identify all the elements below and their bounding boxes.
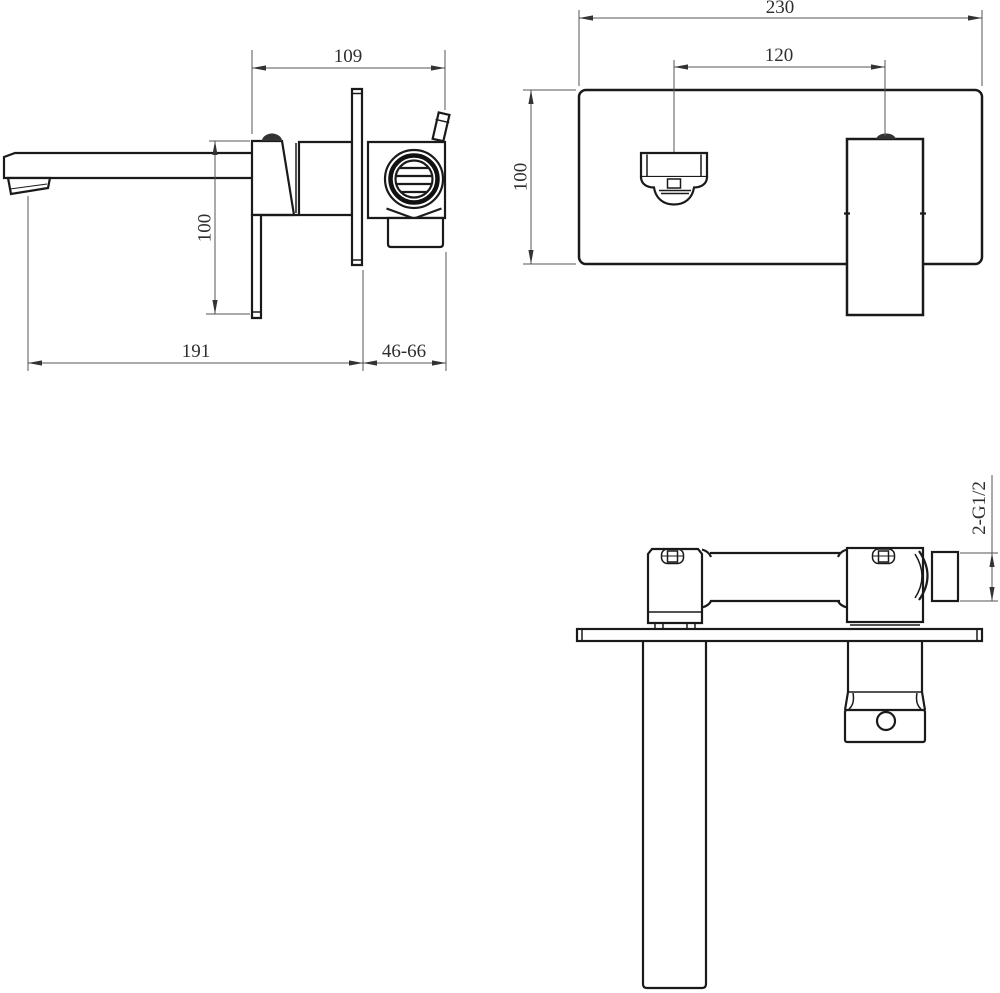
dim-wall-range-label: 46-66	[382, 341, 426, 362]
arrowhead	[871, 64, 885, 69]
side-view	[4, 89, 451, 318]
dim-center-distance-label: 120	[765, 45, 794, 66]
handle-base-top	[845, 710, 925, 742]
top-view-dimensions: 2-G1/2	[960, 475, 998, 601]
thread-connector	[932, 552, 958, 601]
arrowhead	[431, 65, 445, 70]
arrowhead	[528, 90, 533, 104]
dim-handle-drop-label: 100	[195, 214, 216, 243]
body-cylinder	[710, 553, 840, 601]
arrowhead	[349, 360, 363, 365]
arrowhead	[432, 360, 446, 365]
handle-body	[252, 141, 294, 215]
cartridge-housing	[299, 142, 352, 215]
arrowhead	[968, 15, 982, 20]
cylinder-fillets	[702, 550, 847, 608]
technical-drawing: 109 100 191 46-66 230	[0, 0, 1000, 993]
dim-thread-spec-label: 2-G1/2	[969, 481, 990, 535]
arrowhead	[212, 141, 217, 155]
arrowhead	[674, 64, 688, 69]
front-view	[579, 90, 982, 315]
dim-spout-reach-label: 191	[182, 341, 211, 362]
wall-plate-edge	[577, 629, 982, 641]
handle-pin-cap	[262, 134, 282, 141]
outlet-escutcheon	[641, 153, 707, 177]
dim-plate-height-label: 100	[511, 163, 532, 192]
drawing-canvas: 109 100 191 46-66 230	[0, 0, 1000, 993]
arrowhead	[212, 300, 217, 314]
spout-top-view	[643, 641, 706, 988]
valve-union-top	[847, 548, 923, 622]
top-view	[577, 548, 982, 988]
arrowhead	[528, 250, 533, 264]
inlet-fitting	[431, 112, 451, 141]
handle-flare	[845, 692, 925, 710]
arrowhead	[28, 360, 42, 365]
handle-front	[847, 139, 923, 315]
spout-profile	[4, 153, 253, 178]
valve-lower-block	[388, 218, 443, 247]
arrowhead	[579, 15, 593, 20]
arrowhead	[989, 553, 994, 567]
handle-neck-top	[848, 641, 922, 692]
dim-plate-width-label: 230	[766, 0, 795, 18]
arrowhead	[252, 65, 266, 70]
handle-lever	[252, 215, 261, 318]
wall-flange-edge	[352, 89, 362, 265]
dim-body-depth-label: 109	[334, 46, 363, 67]
arrowhead	[363, 360, 377, 365]
inlet-port-outer	[385, 150, 443, 208]
flare-inner-arcs	[849, 693, 921, 709]
arrowhead	[989, 587, 994, 601]
